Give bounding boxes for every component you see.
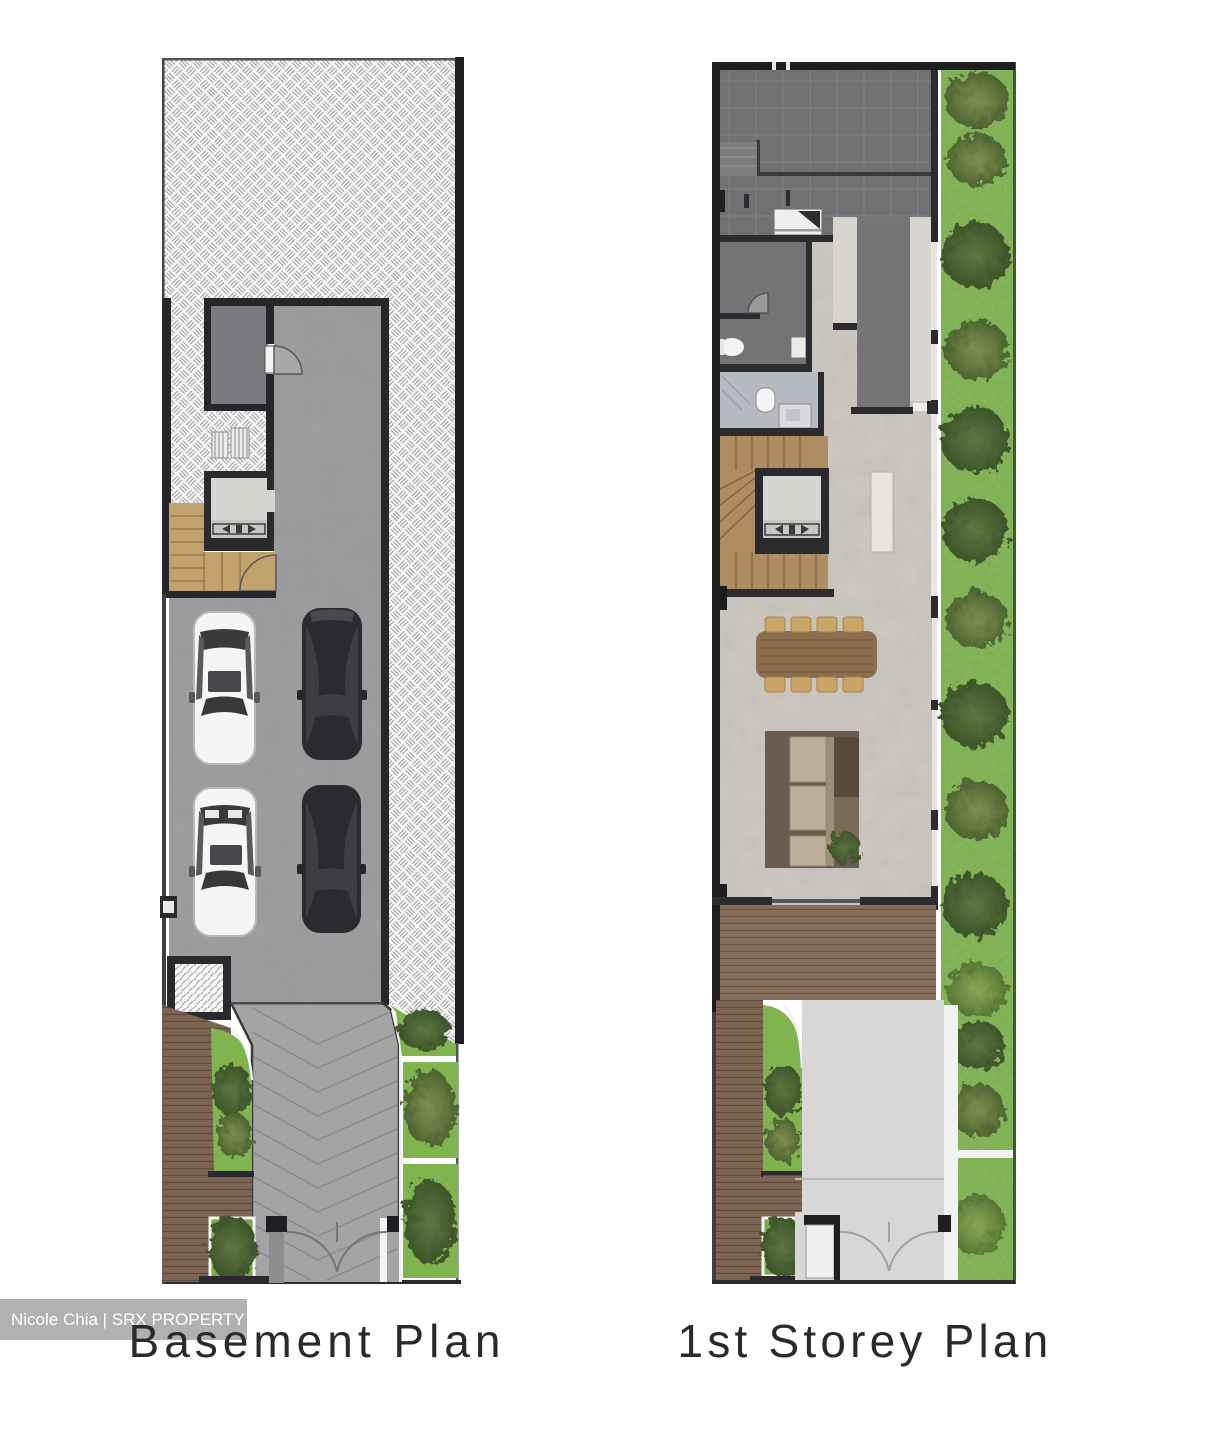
svg-text:1st Storey Plan: 1st Storey Plan — [678, 1315, 1053, 1367]
svg-text:Basement Plan: Basement Plan — [129, 1315, 506, 1367]
